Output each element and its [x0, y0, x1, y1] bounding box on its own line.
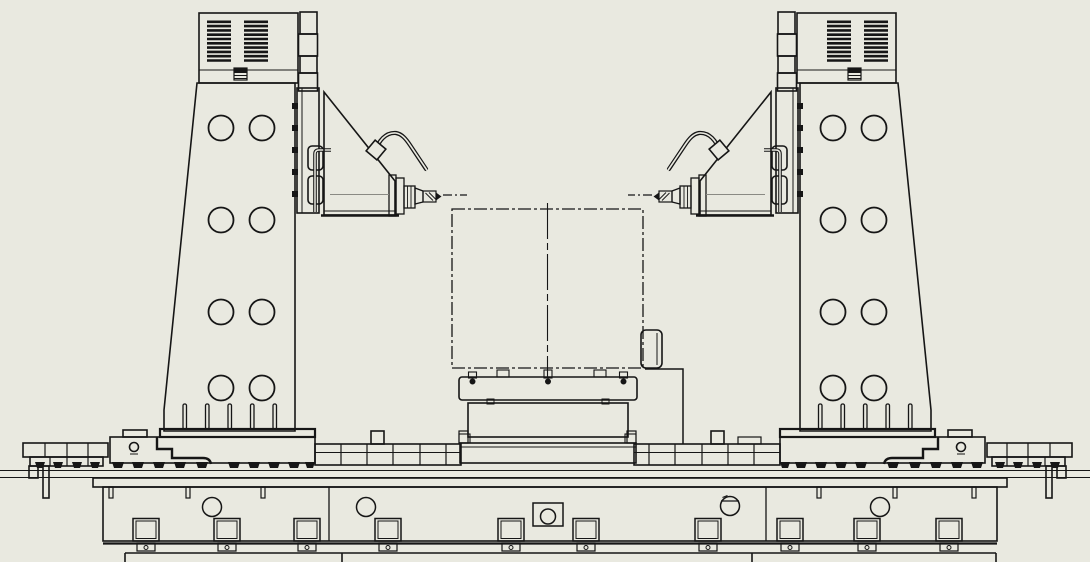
cad-drawing-canvas [0, 0, 1090, 562]
